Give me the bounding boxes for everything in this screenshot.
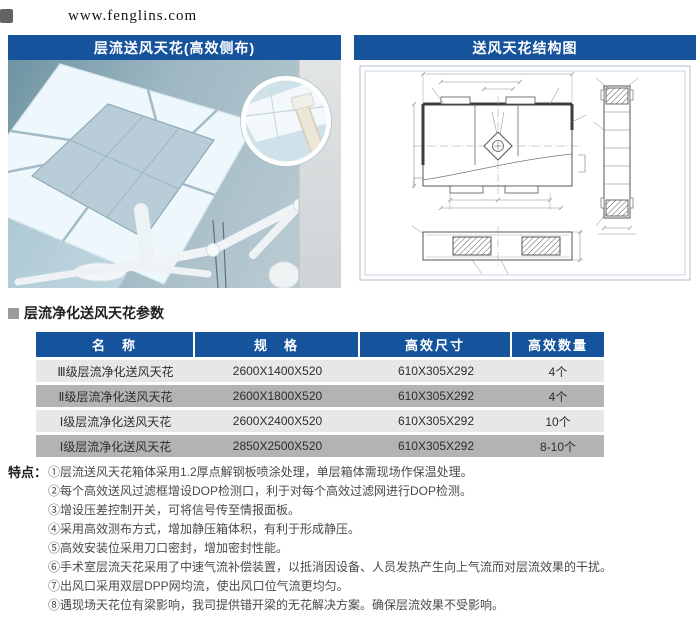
features-section: 特点： ①层流送风天花箱体采用1.2厚点解钢板喷涂处理，单层箱体需现场作保温处理… [8, 463, 684, 615]
table-row: Ⅱ级层流净化送风天花 2600X1800X520 610X305X292 4个 [36, 385, 604, 407]
cell-hepa-size: 610X305X292 [360, 410, 512, 432]
cell-hepa-qty: 10个 [512, 410, 604, 432]
feature-item-7: ⑦出风口采用双层DPP网均流，使出风口位气流更均匀。 [48, 577, 684, 596]
col-header-hepa-qty: 高效数量 [512, 332, 604, 357]
cell-name: Ⅱ级层流净化送风天花 [36, 385, 195, 407]
cell-spec: 2600X1800X520 [195, 385, 360, 407]
col-header-hepa-size: 高效尺寸 [360, 332, 512, 357]
cell-hepa-size: 610X305X292 [360, 435, 512, 457]
cell-spec: 2600X2400X520 [195, 410, 360, 432]
features-label: 特点： [8, 463, 47, 482]
col-header-name: 名 称 [36, 332, 195, 357]
table-header-row: 名 称 规 格 高效尺寸 高效数量 [36, 332, 604, 357]
params-table: 名 称 规 格 高效尺寸 高效数量 Ⅲ级层流净化送风天花 2600X1400X5… [36, 332, 604, 460]
params-section-title-text: 层流净化送风天花参数 [24, 303, 164, 323]
cell-hepa-qty: 8-10个 [512, 435, 604, 457]
diagram-panel-title: 送风天花结构图 [354, 35, 696, 60]
cell-spec: 2600X1400X520 [195, 360, 360, 382]
feature-item-2: ②每个高效送风过滤框增设DOP检测口，利于对每个高效过滤网进行DOP检测。 [48, 482, 684, 501]
scan-smudge-mark [0, 9, 13, 23]
table-row: Ⅰ级层流净化送风天花 2600X2400X520 610X305X292 10个 [36, 410, 604, 432]
cell-name: Ⅲ级层流净化送风天花 [36, 360, 195, 382]
feature-item-8: ⑧遇现场天花位有梁影响，我司提供错开梁的无花解决方案。确保层流效果不受影响。 [48, 596, 684, 615]
structure-diagram-drawing [354, 60, 696, 288]
structure-diagram [354, 60, 696, 288]
square-bullet-icon [8, 308, 19, 319]
params-section-title: 层流净化送风天花参数 [8, 303, 164, 323]
site-watermark: www.fenglins.com [68, 8, 197, 25]
cell-hepa-size: 610X305X292 [360, 385, 512, 407]
table-row: Ⅲ级层流净化送风天花 2600X1400X520 610X305X292 4个 [36, 360, 604, 382]
feature-item-5: ⑤高效安装位采用刀口密封，增加密封性能。 [48, 539, 684, 558]
feature-item-1: ①层流送风天花箱体采用1.2厚点解钢板喷涂处理，单层箱体需现场作保温处理。 [48, 463, 684, 482]
cell-spec: 2850X2500X520 [195, 435, 360, 457]
ceiling-photo [8, 60, 341, 288]
ceiling-photo-illustration [8, 60, 341, 288]
col-header-spec: 规 格 [195, 332, 360, 357]
table-row: Ⅰ级层流净化送风天花 2850X2500X520 610X305X292 8-1… [36, 435, 604, 457]
product-page: www.fenglins.com 层流送风天花(高效侧布) 送风天花结构图 [0, 0, 700, 634]
cell-hepa-qty: 4个 [512, 385, 604, 407]
cell-name: Ⅰ级层流净化送风天花 [36, 435, 195, 457]
feature-item-6: ⑥手术室层流天花采用了中速气流补偿装置，以抵消因设备、人员发热产生向上气流而对层… [48, 558, 684, 577]
photo-panel-title: 层流送风天花(高效侧布) [8, 35, 341, 60]
cell-name: Ⅰ级层流净化送风天花 [36, 410, 195, 432]
feature-item-4: ④采用高效测布方式，增加静压箱体积，有利于形成静压。 [48, 520, 684, 539]
feature-item-3: ③增设压差控制开关，可将信号传至情报面板。 [48, 501, 684, 520]
cell-hepa-size: 610X305X292 [360, 360, 512, 382]
cell-hepa-qty: 4个 [512, 360, 604, 382]
